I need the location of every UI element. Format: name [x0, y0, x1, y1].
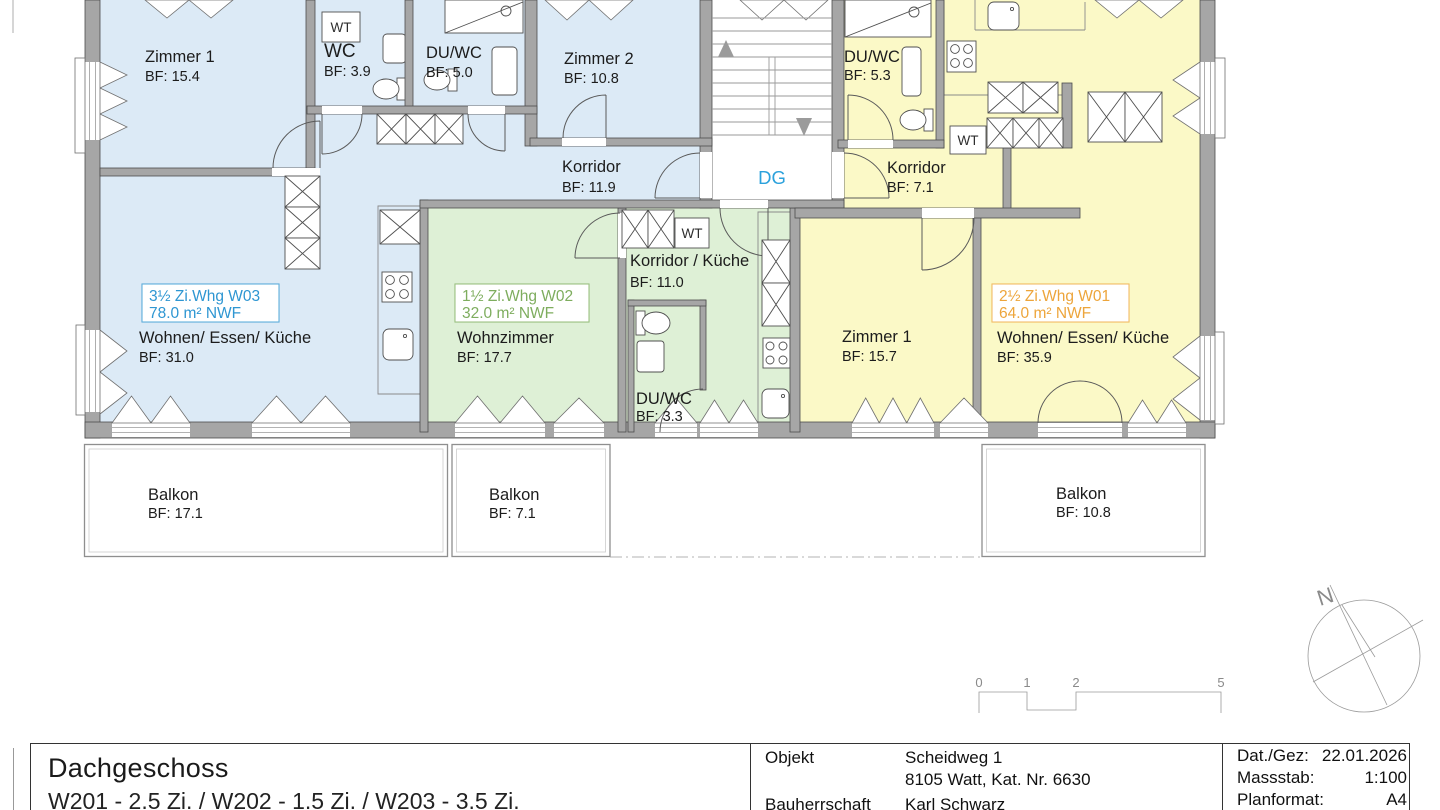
room-area: BF: 3.3: [636, 409, 683, 425]
floor-plan-page: DG Balkon BF: 17.1 Balkon BF: 7.1 Balkon…: [0, 0, 1440, 810]
objekt-label: Objekt: [765, 748, 814, 768]
room-area: BF: 17.7: [457, 350, 512, 366]
sink-icon: [988, 2, 1019, 30]
room-name: Wohnzimmer: [457, 329, 554, 347]
washbasin-icon: [383, 34, 406, 63]
objekt-value-line2: 8105 Watt, Kat. Nr. 6630: [905, 770, 1091, 790]
apartment-area: 78.0 m² NWF: [149, 305, 241, 322]
title-block-divider: [750, 743, 751, 810]
washing-tower-label: WT: [958, 133, 979, 148]
washbasin-icon: [637, 341, 664, 372]
room-name: Zimmer 2: [564, 50, 634, 68]
north-compass-icon: N: [1308, 582, 1423, 712]
format-row: Planformat: A4: [1237, 790, 1407, 810]
room-area: BF: 35.9: [997, 350, 1052, 366]
apartment-type: 2½ Zi.Whg W01: [999, 288, 1110, 305]
room-name: Korridor / Küche: [630, 252, 749, 270]
scale-tick: 0: [975, 675, 982, 690]
scale-tick: 5: [1217, 675, 1224, 690]
balcony-w03: Balkon BF: 17.1: [85, 445, 448, 557]
room-name: Wohnen/ Essen/ Küche: [997, 329, 1169, 347]
room-name: WC: [324, 41, 356, 62]
room-area: BF: 11.0: [630, 275, 684, 291]
room-area: BF: 5.0: [426, 65, 473, 81]
room-area: BF: 5.3: [844, 68, 891, 84]
title-block-divider: [1222, 743, 1223, 810]
apartment-label-w01: 2½ Zi.Whg W01 64.0 m² NWF: [992, 284, 1129, 322]
washbasin-icon: [492, 47, 517, 95]
north-label: N: [1314, 582, 1337, 611]
room-area: BF: 10.8: [564, 71, 619, 87]
room-area: BF: 15.7: [842, 349, 897, 365]
room-name: Korridor: [887, 159, 946, 177]
date-label: Dat./Gez:: [1237, 746, 1309, 766]
stove-icon: [947, 41, 976, 72]
floor-title: Dachgeschoss: [48, 753, 229, 784]
room-area: BF: 7.1: [489, 506, 536, 522]
room-name: Korridor: [562, 158, 621, 176]
scale-row: Massstab: 1:100: [1237, 768, 1407, 788]
objekt-value-line1: Scheidweg 1: [905, 748, 1002, 768]
apartment-label-w02: 1½ Zi.Whg W02 32.0 m² NWF: [455, 284, 589, 322]
apartment-area: 32.0 m² NWF: [462, 305, 554, 322]
room-area: BF: 11.9: [562, 180, 616, 196]
balcony-w01: Balkon BF: 10.8: [982, 445, 1205, 557]
room-area: BF: 10.8: [1056, 505, 1111, 521]
floor-subtitle: W201 - 2.5 Zi. / W202 - 1.5 Zi. / W203 -…: [48, 788, 520, 810]
room-name: Zimmer 1: [145, 48, 215, 66]
room-name: Balkon: [489, 486, 539, 504]
room-area: BF: 3.9: [324, 64, 371, 80]
bauherrschaft-value: Karl Schwarz: [905, 795, 1005, 810]
room-area: BF: 31.0: [139, 350, 194, 366]
room-name: Wohnen/ Essen/ Küche: [139, 329, 311, 347]
scale-tick: 2: [1072, 675, 1079, 690]
apartment-area: 64.0 m² NWF: [999, 305, 1091, 322]
room-area: BF: 17.1: [148, 506, 203, 522]
room-name: Balkon: [1056, 485, 1106, 503]
room-name: DU/WC: [426, 44, 482, 62]
date-value: 22.01.2026: [1322, 746, 1407, 766]
page-border-stub: [13, 748, 14, 810]
scale-bar: 0 1 2 5: [975, 675, 1224, 713]
stove-icon: [763, 338, 790, 368]
room-name: Balkon: [148, 486, 198, 504]
toilet-icon: [636, 311, 670, 335]
washbasin-icon: [902, 47, 921, 96]
toilet-icon: [900, 109, 933, 131]
washing-tower-label: WT: [331, 20, 352, 35]
sink-icon: [383, 329, 413, 360]
room-name: DU/WC: [844, 48, 900, 66]
balcony-w02: Balkon BF: 7.1: [452, 445, 610, 557]
room-area: BF: 7.1: [887, 180, 934, 196]
apartment-type: 1½ Zi.Whg W02: [462, 288, 573, 305]
scale-value: 1:100: [1364, 768, 1407, 788]
scale-tick: 1: [1023, 675, 1030, 690]
stairwell-floor-label: DG: [758, 167, 786, 188]
apartment-type: 3½ Zi.Whg W03: [149, 288, 260, 305]
shower-icon: [445, 0, 523, 33]
format-value: A4: [1386, 790, 1407, 810]
scale-label: Massstab:: [1237, 768, 1314, 788]
washing-tower-label: WT: [682, 226, 703, 241]
sink-icon: [762, 389, 789, 418]
toilet-icon: [373, 78, 406, 100]
bauherrschaft-label: Bauherrschaft: [765, 795, 871, 810]
room-name: DU/WC: [636, 390, 692, 408]
format-label: Planformat:: [1237, 790, 1324, 810]
stove-icon: [382, 272, 412, 302]
room-area: BF: 15.4: [145, 69, 200, 85]
apartment-label-w03: 3½ Zi.Whg W03 78.0 m² NWF: [142, 284, 279, 322]
room-name: Zimmer 1: [842, 328, 912, 346]
date-row: Dat./Gez: 22.01.2026: [1237, 746, 1407, 766]
floor-plan-drawing: DG Balkon BF: 17.1 Balkon BF: 7.1 Balkon…: [0, 0, 1440, 740]
shower-icon: [845, 0, 931, 37]
